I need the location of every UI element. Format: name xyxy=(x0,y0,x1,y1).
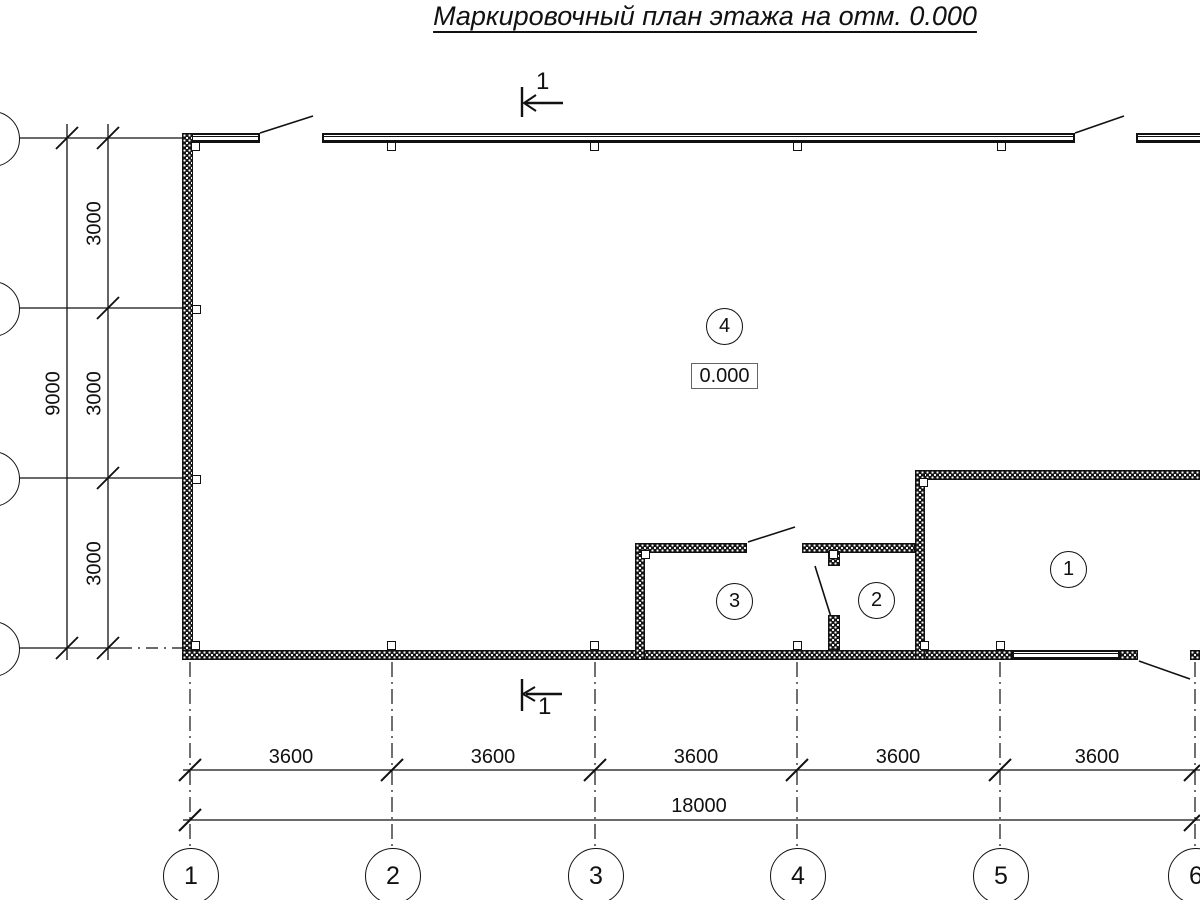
column-mark xyxy=(387,641,396,650)
axis-number: 5 xyxy=(994,862,1008,891)
dim-left-seg1: 3000 xyxy=(84,192,107,256)
column-mark xyxy=(192,305,201,314)
dim-bottom-seg4: 3600 xyxy=(863,746,933,769)
elevation-mark: 0.000 xyxy=(691,363,758,389)
axis-number: 2 xyxy=(386,862,400,891)
dim-bottom-seg1: 3600 xyxy=(256,746,326,769)
window-band-top-3 xyxy=(1136,133,1200,143)
axis-circle-5: 5 xyxy=(973,848,1029,900)
column-mark xyxy=(920,641,929,650)
axis-circle-4: 4 xyxy=(770,848,826,900)
wall-room1-top xyxy=(915,470,1200,480)
axis-circle-3: 3 xyxy=(568,848,624,900)
column-mark xyxy=(793,641,802,650)
column-mark xyxy=(997,142,1006,151)
column-mark xyxy=(590,142,599,151)
column-mark xyxy=(793,142,802,151)
column-mark xyxy=(590,641,599,650)
window-band-bottom xyxy=(1012,650,1120,660)
axis-circle-1: 1 xyxy=(163,848,219,900)
room-circle-2: 2 xyxy=(858,582,895,619)
dim-left-total: 9000 xyxy=(43,362,66,426)
axis-number: 3 xyxy=(589,862,603,891)
column-mark xyxy=(191,641,200,650)
axis-circle-2: 2 xyxy=(365,848,421,900)
dim-bottom-total: 18000 xyxy=(659,795,739,818)
column-mark xyxy=(641,550,650,559)
wall-exterior-bottom xyxy=(182,650,1012,660)
room-number: 4 xyxy=(719,315,730,338)
dim-bottom-seg5: 3600 xyxy=(1062,746,1132,769)
dim-left-seg2: 3000 xyxy=(84,362,107,426)
wall-room2-top xyxy=(802,543,915,553)
floor-plan-canvas: Маркировочный план этажа на отм. 0.000 xyxy=(0,0,1200,900)
wall-room1-left xyxy=(915,470,925,660)
column-mark xyxy=(829,550,838,559)
wall-bottom-right-corner xyxy=(1190,650,1200,660)
dim-bottom-seg3: 3600 xyxy=(661,746,731,769)
window-band-glass-line xyxy=(193,136,258,141)
wall-exterior-left xyxy=(182,133,193,660)
elevation-value: 0.000 xyxy=(699,365,749,388)
room-circle-3: 3 xyxy=(716,583,753,620)
room-number: 2 xyxy=(871,589,882,612)
wall-room3-top xyxy=(635,543,747,553)
room-number: 3 xyxy=(729,590,740,613)
axis-number: 1 xyxy=(184,862,198,891)
column-mark xyxy=(192,475,201,484)
section-label-bottom: 1 xyxy=(538,693,551,721)
wall-room3-left xyxy=(635,543,645,660)
wall-room2-door-jamb-bottom xyxy=(828,615,840,650)
window-band-glass-line xyxy=(1014,653,1118,658)
column-mark xyxy=(191,142,200,151)
room-circle-1: 1 xyxy=(1050,551,1087,588)
window-band-top-1 xyxy=(193,133,260,143)
room-number: 1 xyxy=(1063,558,1074,581)
section-label-top: 1 xyxy=(536,68,549,96)
room-circle-4: 4 xyxy=(706,308,743,345)
column-mark xyxy=(996,641,1005,650)
wall-bottom-right-pier xyxy=(1120,650,1138,660)
column-mark xyxy=(387,142,396,151)
window-band-glass-line xyxy=(1138,136,1200,141)
column-mark xyxy=(919,478,928,487)
dim-left-seg3: 3000 xyxy=(84,532,107,596)
axis-number: 6 xyxy=(1189,862,1200,891)
axis-number: 4 xyxy=(791,862,805,891)
dim-bottom-seg2: 3600 xyxy=(458,746,528,769)
window-band-top-2 xyxy=(322,133,1075,143)
window-band-glass-line xyxy=(324,136,1073,141)
